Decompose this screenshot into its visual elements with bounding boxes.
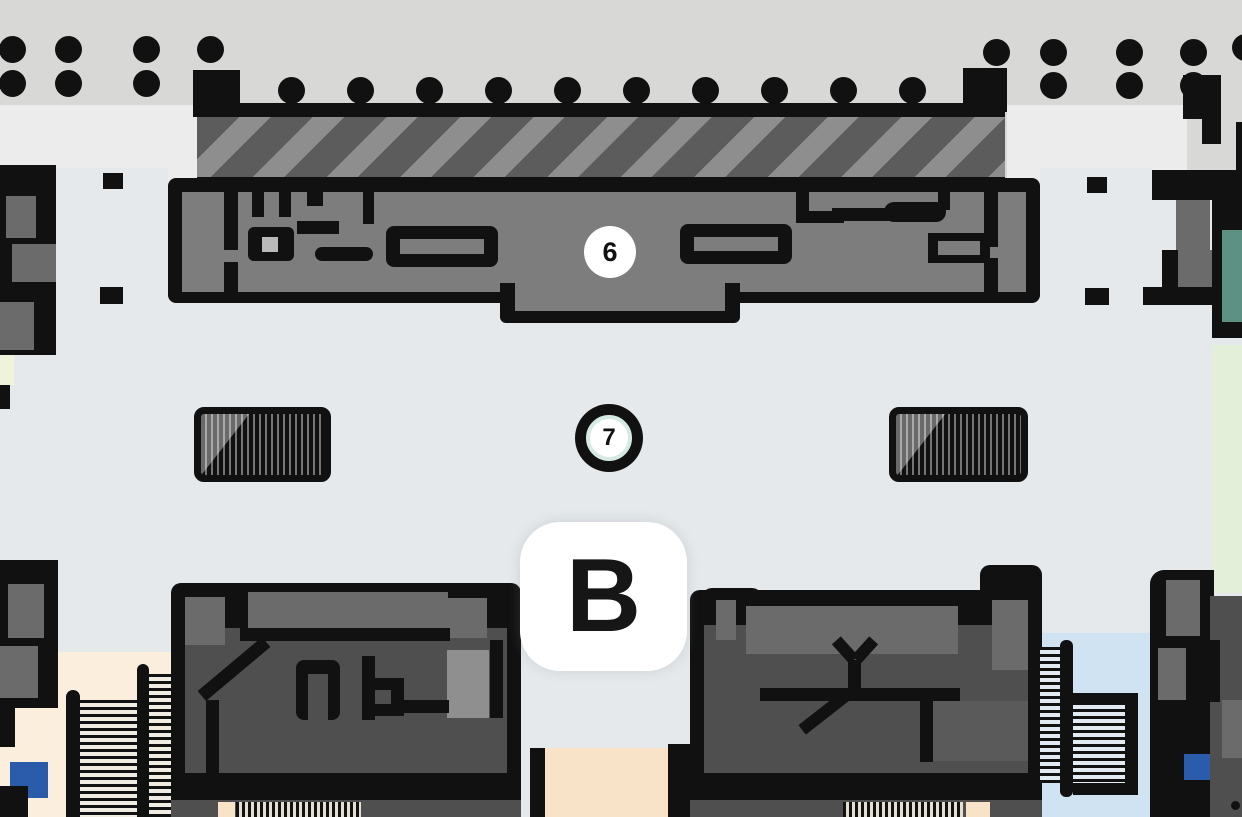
wall-segment	[1143, 287, 1213, 305]
wall-segment	[0, 700, 15, 747]
room-floor	[1176, 200, 1210, 250]
wall-segment	[490, 640, 503, 718]
grass-patch	[0, 355, 14, 385]
wall-segment	[938, 192, 950, 210]
wall-segment	[668, 744, 690, 817]
room-floor	[8, 584, 44, 638]
escalator-rail	[66, 690, 80, 817]
map-marker-7[interactable]: 7	[575, 404, 643, 472]
column-dot-icon	[278, 77, 305, 104]
wall-segment	[279, 190, 291, 217]
counter-right-top	[694, 237, 778, 251]
column-dot-icon	[554, 77, 581, 104]
column-dot-icon	[830, 77, 857, 104]
kiosk-center	[262, 237, 278, 252]
escalator-rail	[1060, 640, 1073, 797]
room-floor	[938, 241, 980, 255]
walkway-stripes-icon	[843, 802, 963, 817]
walkway-stripes-icon	[236, 802, 361, 817]
wall-segment	[0, 385, 10, 409]
wall-segment	[315, 247, 373, 261]
parking-square	[1184, 754, 1210, 780]
zone-label-b[interactable]: B	[520, 522, 687, 671]
room-floor	[746, 606, 958, 654]
wall-segment	[404, 700, 449, 713]
room-floor	[185, 597, 225, 645]
column-dot-icon	[0, 36, 26, 63]
column-dot-icon	[1232, 34, 1242, 61]
wall-segment	[832, 208, 890, 221]
escalator-icon	[1073, 702, 1125, 783]
wall-segment	[1162, 250, 1178, 290]
wall-segment	[0, 786, 28, 817]
wall-segment	[363, 191, 374, 224]
column-dot-icon	[1116, 72, 1143, 99]
peach-doorway	[218, 802, 235, 817]
column-dot-icon	[485, 77, 512, 104]
stairs-icon	[889, 407, 1028, 482]
teal-room	[1222, 230, 1242, 322]
wall-segment	[297, 221, 339, 234]
room-floor	[6, 196, 36, 238]
column-dot-icon	[1116, 39, 1143, 66]
pillar-square	[1087, 177, 1107, 193]
column-dot-icon	[983, 39, 1010, 66]
room-floor	[375, 690, 391, 704]
wall-segment	[240, 628, 450, 641]
room-floor	[1178, 250, 1212, 287]
room-floor	[1166, 580, 1200, 636]
corridor-peach	[545, 748, 668, 817]
pillar-square	[100, 287, 123, 304]
marker-7-label: 7	[602, 424, 615, 452]
room-floor	[0, 646, 38, 698]
map-marker-6[interactable]: 6	[584, 226, 636, 278]
wall-segment	[690, 773, 1042, 802]
room-floor	[0, 302, 34, 350]
column-dot-icon	[55, 36, 82, 63]
column-dot-icon	[623, 77, 650, 104]
garden-strip	[1212, 345, 1242, 593]
column-dot-icon	[692, 77, 719, 104]
escalator-rail	[1125, 693, 1138, 793]
room-floor	[308, 674, 328, 720]
marker-7-ring: 7	[586, 415, 632, 461]
wall-segment	[984, 258, 998, 292]
room-floor	[1158, 648, 1186, 700]
room-floor	[992, 600, 1028, 670]
wall-segment	[206, 700, 219, 775]
wall-segment	[920, 700, 933, 762]
room-floor	[447, 650, 489, 718]
column-dot-icon	[1180, 39, 1207, 66]
column-dot-icon	[55, 70, 82, 97]
escalator-rail	[137, 664, 149, 817]
stairs-icon	[194, 407, 331, 482]
column-dot-icon	[1040, 72, 1067, 99]
wall-segment	[224, 192, 238, 250]
concourse-bay-floor	[515, 283, 725, 311]
column-dot-icon	[133, 36, 160, 63]
column-dot-icon	[133, 70, 160, 97]
wall-segment	[224, 262, 238, 292]
wall-segment	[984, 192, 998, 247]
y-wall	[848, 660, 861, 698]
room-floor	[1222, 700, 1242, 758]
pillar-square	[1085, 288, 1109, 305]
column-dot-icon	[1040, 39, 1067, 66]
zone-label-text: B	[566, 537, 641, 656]
escalator-icon	[1040, 647, 1060, 783]
column-dot-icon	[416, 77, 443, 104]
wall-segment	[307, 190, 323, 206]
escalator-cap	[1073, 783, 1138, 795]
table-pill	[884, 202, 946, 222]
counter-left-top	[400, 239, 484, 254]
right-edge-building	[1152, 170, 1242, 200]
column-dot-icon	[0, 70, 26, 97]
room-floor	[12, 244, 56, 282]
room-floor	[716, 600, 736, 640]
column-dot-icon	[347, 77, 374, 104]
wall-segment	[1206, 640, 1220, 702]
column-dot-icon	[1231, 801, 1240, 810]
escalator-icon	[80, 700, 137, 817]
column-dot-icon	[197, 36, 224, 63]
column-dots	[0, 0, 1242, 188]
wall-segment	[252, 190, 264, 217]
column-dot-icon	[761, 77, 788, 104]
escalator-icon	[149, 674, 171, 817]
column-dot-icon	[1180, 72, 1207, 99]
indoor-map[interactable]: 6 7 B	[0, 0, 1242, 817]
column-dot-icon	[899, 77, 926, 104]
room-floor	[933, 701, 1028, 761]
escalator-cap	[1073, 693, 1125, 702]
pillar-square	[103, 173, 123, 189]
wall-segment	[530, 748, 545, 817]
marker-6-label: 6	[602, 237, 617, 268]
wall-segment	[171, 773, 521, 802]
peach-doorway	[966, 802, 990, 817]
